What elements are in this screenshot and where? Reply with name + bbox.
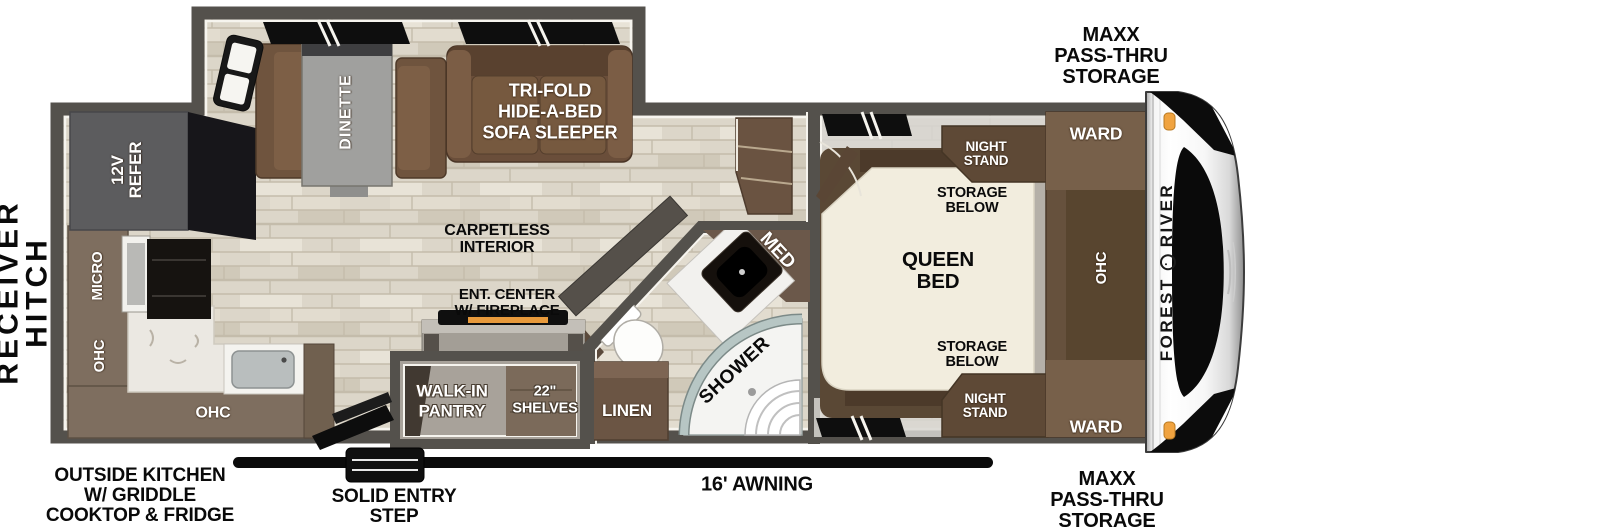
cooktop xyxy=(147,239,211,319)
kitchen-sink xyxy=(232,351,294,388)
kitchen-left-cabinet xyxy=(68,226,128,392)
entry-step xyxy=(346,448,424,482)
marker-light-top xyxy=(1164,113,1175,130)
dinette-table xyxy=(302,38,392,186)
refrigerator-side xyxy=(188,112,256,240)
sofa-area xyxy=(447,46,632,162)
bedroom-ohc-cabinet xyxy=(1066,190,1148,360)
queen-bed-mattress xyxy=(822,168,1034,390)
bedroom-area xyxy=(814,112,1148,437)
fireplace-glow xyxy=(468,317,548,323)
wardrobe-bottom xyxy=(1046,360,1148,437)
marker-light-bottom xyxy=(1164,422,1175,439)
bedroom-steps xyxy=(736,118,792,214)
floorplan-drawing xyxy=(0,0,1600,528)
floorplan-canvas: RECEIVER HITCH MAXX PASS-THRU STORAGE MA… xyxy=(0,0,1600,528)
front-cap xyxy=(1146,90,1250,454)
nightstand-bottom xyxy=(942,374,1048,437)
wardrobe-top xyxy=(1046,112,1148,190)
pantry-shelf xyxy=(506,366,576,436)
kitchen-end-cabinet xyxy=(304,344,334,438)
refrigerator xyxy=(70,112,188,230)
dinette-area xyxy=(256,38,446,197)
